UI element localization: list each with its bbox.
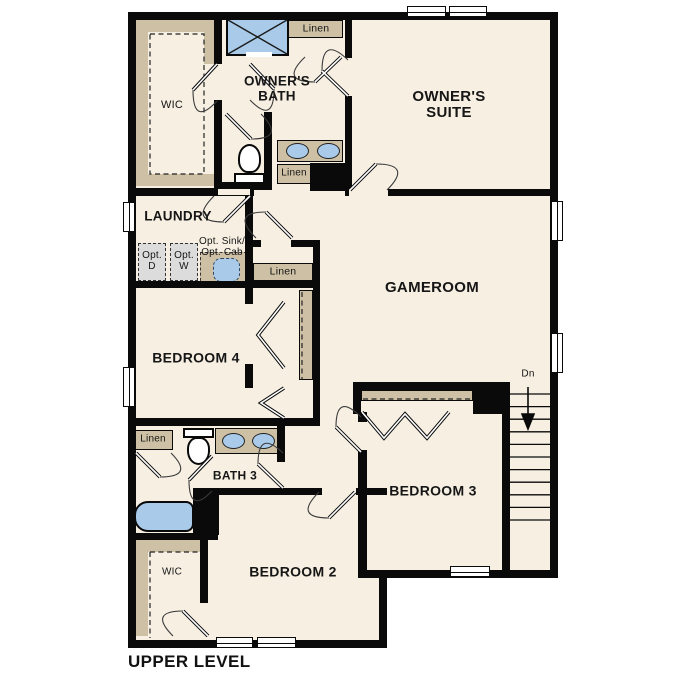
label-linen-upper: Linen (303, 23, 330, 34)
label-opt-sink-cab: Opt. Sink/ Opt. Cab (194, 237, 250, 259)
label-laundry: LAUNDRY (144, 210, 212, 225)
plan-title: UPPER LEVEL (128, 652, 250, 672)
label-bath3: BATH 3 (213, 470, 257, 483)
label-gameroom: GAMEROOM (385, 280, 479, 296)
label-opt-washer: Opt. W (172, 251, 196, 273)
label-wic-lower: WIC (162, 568, 182, 579)
bifold-bed3 (362, 412, 449, 438)
door-leaves-outer (136, 57, 449, 636)
stair-treads (510, 394, 550, 520)
lineart-overlay (0, 0, 687, 687)
label-linen-bath3: Linen (140, 435, 165, 446)
bifold-bed4-upper (258, 302, 284, 368)
label-owners-suite: OWNER'S SUITE (402, 89, 497, 121)
label-stairs-down: Dn (521, 370, 534, 381)
bifold-bed4-lower (261, 388, 284, 418)
door-leaves-inner (136, 57, 449, 636)
label-linen-hall: Linen (270, 266, 297, 277)
label-bedroom4: BEDROOM 4 (152, 350, 240, 365)
label-owners-bath: OWNER'S BATH (236, 74, 318, 103)
floor-plan: WIC OWNER'S BATH OWNER'S SUITE Linen Lin… (0, 0, 687, 687)
label-opt-dryer: Opt. D (140, 251, 164, 273)
shower-x-icon (228, 20, 287, 54)
stairs-down-arrow (522, 387, 534, 429)
door-swing-arcs (160, 50, 398, 636)
label-bedroom3: BEDROOM 3 (389, 483, 477, 498)
label-wic-upper: WIC (161, 100, 183, 112)
closet-rod-dashes (150, 34, 471, 638)
label-bedroom2: BEDROOM 2 (249, 564, 337, 579)
label-linen-vanity: Linen (281, 169, 306, 180)
